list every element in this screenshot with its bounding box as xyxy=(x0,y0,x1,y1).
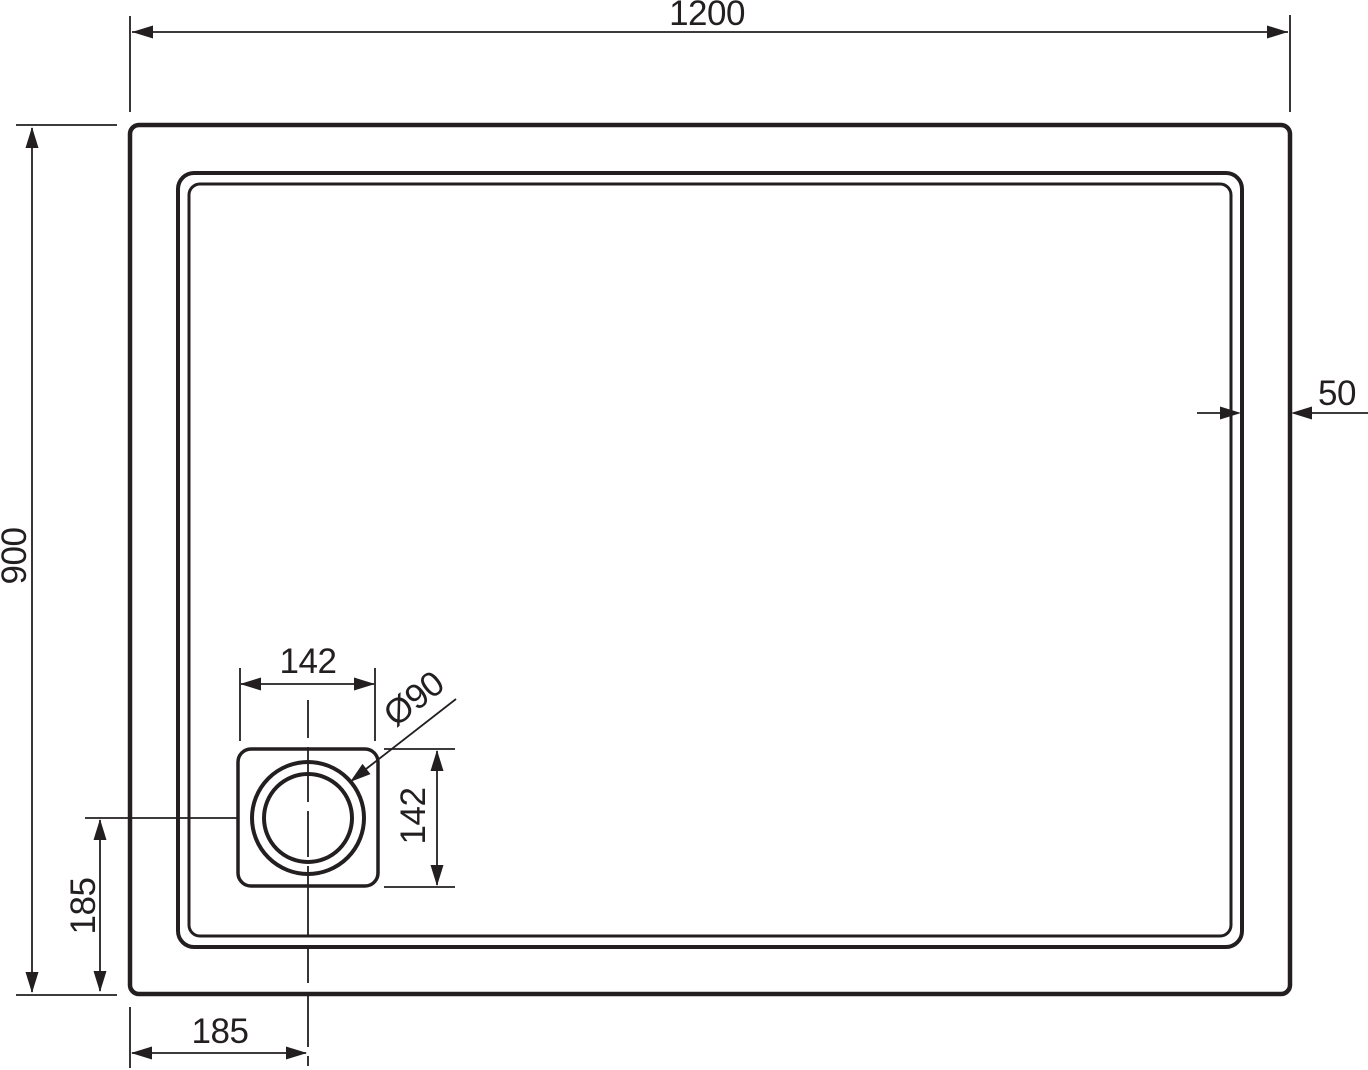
dim-drain-center-to-bottom-label: 185 xyxy=(64,878,103,935)
dim-drain-box-height-label: 142 xyxy=(394,788,433,845)
arrowhead xyxy=(431,865,444,886)
arrowhead xyxy=(1267,26,1288,39)
dim-overall-width-label: 1200 xyxy=(669,0,745,33)
arrowhead xyxy=(286,1047,307,1060)
shower-tray-drawing-canvas: 1200 900 50 142 Ø90 142 xyxy=(0,0,1368,1070)
dim-drain-center-from-left: 185 xyxy=(130,1007,307,1068)
arrowhead xyxy=(350,764,371,782)
dim-rim-width-label: 50 xyxy=(1318,374,1356,413)
technical-drawing-page: 1200 900 50 142 Ø90 142 xyxy=(0,0,1368,1070)
tray-rim-inner-line xyxy=(189,184,1231,936)
arrowhead xyxy=(131,1047,152,1060)
arrowhead xyxy=(94,819,107,840)
arrowhead xyxy=(26,972,39,993)
tray-rim-outer-line xyxy=(178,173,1242,947)
dim-rim-width: 50 xyxy=(1197,374,1368,420)
dim-drain-diameter-label: Ø90 xyxy=(376,664,451,735)
dim-overall-depth-label: 900 xyxy=(0,528,34,585)
dim-drain-center-to-bottom: 185 xyxy=(64,819,107,992)
arrowhead xyxy=(1291,407,1312,420)
arrowhead xyxy=(240,678,261,691)
dim-drain-box-height: 142 xyxy=(384,749,455,887)
dim-overall-width: 1200 xyxy=(130,0,1290,112)
dim-drain-center-from-left-label: 185 xyxy=(192,1012,249,1051)
arrowhead xyxy=(431,750,444,771)
arrowhead xyxy=(26,127,39,148)
arrowhead xyxy=(132,26,153,39)
dim-drain-box-width-label: 142 xyxy=(280,642,337,681)
arrowhead xyxy=(94,971,107,992)
arrowhead xyxy=(354,678,375,691)
